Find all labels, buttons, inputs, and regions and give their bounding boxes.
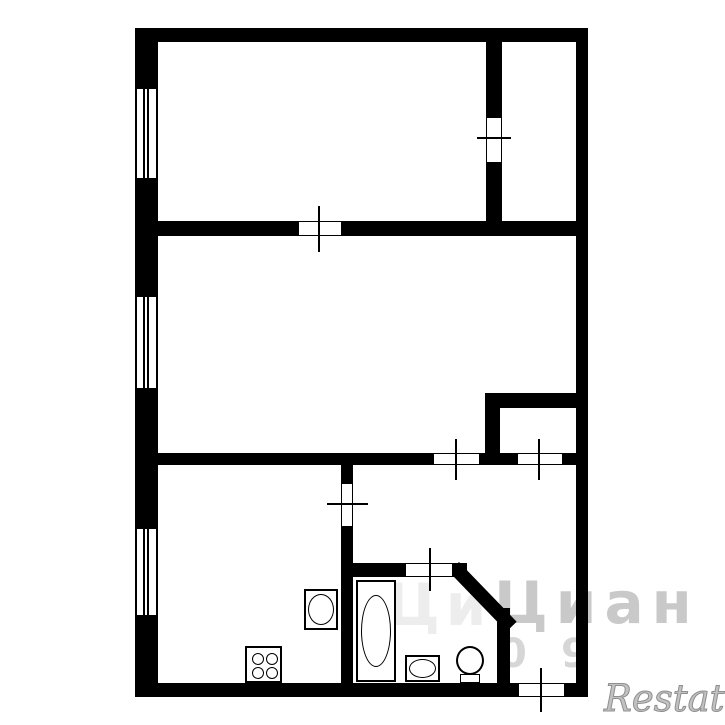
wall-h2-c [563,453,576,465]
watermark-cian: Циан [494,574,700,632]
divider-topright-lower [486,163,502,221]
bathtub-basin [361,595,391,667]
window-kitchen [135,527,158,617]
window-pane-line [143,529,145,615]
toilet-bowl [456,646,484,675]
outer-wall-bottom-b [565,683,588,697]
bathtub [356,580,396,682]
stove-burner [266,667,278,679]
window-room2 [135,295,158,390]
door-topright-room-tick [477,137,511,139]
door-topright-room [486,117,502,163]
toilet-tank [460,674,480,683]
window-pane-line [147,297,149,388]
outer-wall-left-a [135,28,158,87]
door-balcony-tick [540,668,542,712]
wall-h2-a [158,453,433,465]
wall-h1-left [158,221,298,236]
outer-wall-left-c [135,390,158,527]
window-pane-line [147,89,149,178]
divider-topright-upper [486,42,502,117]
kitchen-sink-basin [308,594,334,625]
floor-plan: ЦиЦиан09Restate [0,0,725,725]
stove-burner [266,653,278,665]
window-pane-line [143,89,145,178]
door-room1-tick [318,206,320,252]
window-room1 [135,87,158,180]
stove-burner [252,667,264,679]
outer-wall-bottom-a [135,683,518,697]
kitchen-wall-lower [341,527,353,683]
door-room1 [298,221,342,236]
outer-wall-right [576,28,588,697]
outer-wall-top [135,28,588,42]
stove [245,646,282,683]
outer-wall-left-b [135,180,158,295]
wall-h1-right [342,221,576,236]
stove-burner [252,653,264,665]
wash-basin-bowl [409,659,436,678]
bath-wall-top-left [341,563,405,577]
door-kitchen-tick [327,503,368,505]
door-closet [517,453,563,465]
watermark-restate: Restate [604,680,725,717]
window-pane-line [147,529,149,615]
kitchen-sink [304,589,338,630]
kitchen-wall-upper [341,465,353,483]
door-room2-hall-tick [455,439,457,480]
wash-basin [405,655,440,682]
door-bathroom-tick [429,548,431,591]
closet-wall-left [485,405,500,465]
door-closet-tick [538,439,540,480]
door-kitchen [341,483,353,527]
closet-wall-top [485,393,588,408]
window-pane-line [143,297,145,388]
